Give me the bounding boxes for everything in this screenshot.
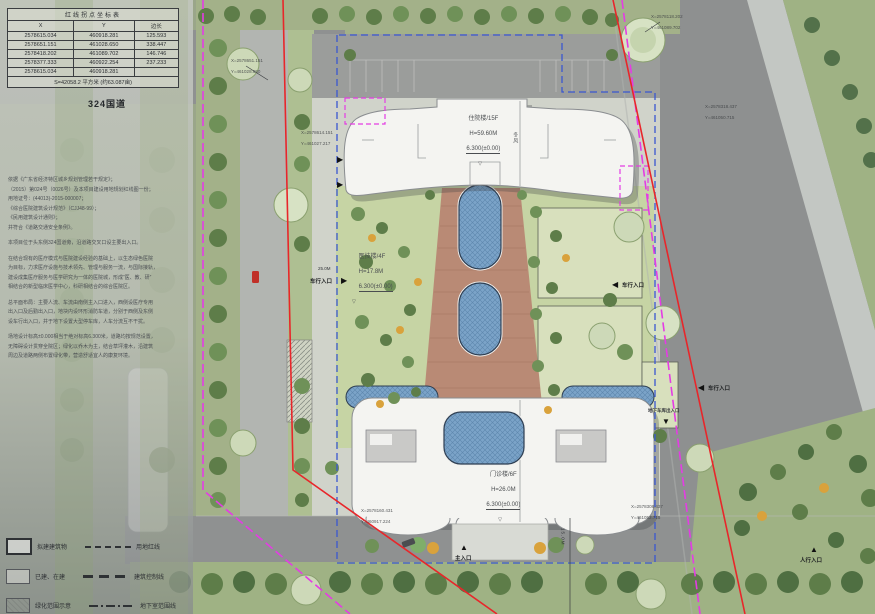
cell-len: 146.746 bbox=[134, 50, 178, 59]
cell-y: 460922.254 bbox=[74, 59, 135, 68]
callout-x: X=2578651.151 bbox=[231, 58, 263, 63]
note-line: 本项目位于头东侧324国道旁，沿道路交叉口设主要出入口。 bbox=[8, 239, 186, 248]
coord-callout: X=2578651.151 Y=461028.650 bbox=[226, 52, 263, 80]
note-line: 相结合的新型临床医学中心，科研相结合的综合医院区。 bbox=[8, 283, 186, 292]
note-line: （2015）第024号（0026号）及本项目建设用地规划红线图一份； bbox=[8, 186, 186, 195]
coord-callout: X=2578614.151 Y=461027.217 bbox=[296, 124, 333, 152]
cell-x: 2578418.202 bbox=[8, 50, 74, 59]
cell-y: 460918.281 bbox=[74, 32, 135, 41]
cell-y: 460918.281 bbox=[74, 68, 135, 77]
coord-callout: X=2578318.437 Y=461050.715 bbox=[700, 98, 737, 126]
note-line: 依据《广东省经济特区城乡规划管理若干规定》； bbox=[8, 176, 186, 185]
inpatient-elevation: 6.300(±0.00) bbox=[466, 146, 500, 155]
callout-y: Y=461052.715 bbox=[631, 515, 660, 520]
medtech-building-label: 医技楼/4F H=17.8M 6.300(±0.00) ▽ bbox=[352, 246, 412, 319]
entrance-arrow-icon: ◀ bbox=[612, 281, 618, 289]
note-line bbox=[8, 293, 186, 298]
coord-callout: X=2578118.202 Y=461089.702 bbox=[646, 8, 683, 36]
left-road-dimension: 25.0M bbox=[318, 266, 331, 272]
outpatient-elevation: 6.300(±0.00) bbox=[486, 502, 520, 511]
legend-row: 已建、在建 建筑控制线 bbox=[6, 569, 191, 584]
pedestrian-entrance-arrow-icon: ▲ bbox=[810, 546, 818, 554]
cell-len: 237.233 bbox=[134, 59, 178, 68]
medtech-height: H=17.8M bbox=[359, 269, 384, 275]
cell-len bbox=[134, 68, 178, 77]
land-redline-sample-icon bbox=[85, 546, 131, 548]
note-line bbox=[8, 233, 186, 238]
entrance-arrow-icon: ▶ bbox=[337, 156, 343, 164]
table-row: 2578377.333 460922.254 237.233 bbox=[8, 59, 179, 68]
note-line: 总平面布局：主要人流、车流由南侧主入口进入，西侧设医疗专用 bbox=[8, 299, 186, 308]
greenery-swatch-icon bbox=[6, 598, 30, 613]
table-title: 红线拐点坐标表 bbox=[8, 9, 179, 21]
legend-label: 建筑控制线 bbox=[134, 572, 164, 581]
medtech-elevation: 6.300(±0.00) bbox=[359, 284, 393, 293]
bottom-road-dimension: 15.0M bbox=[560, 528, 566, 546]
callout-y: Y=460917.224 bbox=[361, 519, 390, 524]
coord-callout: X=2578160.431 Y=460917.224 bbox=[356, 502, 393, 530]
legend-label: 地下室范围线 bbox=[140, 601, 176, 610]
callout-y: Y=461027.217 bbox=[301, 141, 330, 146]
cell-x: 2578615.034 bbox=[8, 68, 74, 77]
note-line: 《民用建筑设计通则》； bbox=[8, 214, 186, 223]
legend-row: 绿化范围示意 地下室范围线 bbox=[6, 598, 191, 613]
callout-x: X=2578318.437 bbox=[705, 104, 737, 109]
col-y: Y bbox=[74, 21, 135, 32]
pedestrian-entrance-label: 人行入口 bbox=[800, 558, 822, 565]
left-vehicle-entrance-label: 车行入口 bbox=[310, 279, 332, 286]
cell-y: 461028.650 bbox=[74, 41, 135, 50]
note-line: 并符合《道路交通安全条例》。 bbox=[8, 224, 186, 233]
table-area-row: S=42058.2 平方米 (约63.087亩) bbox=[8, 77, 179, 88]
control-line-sample-icon bbox=[83, 575, 129, 578]
note-line: 在结合现有的医疗模式与医院建设经验的基础上，以生态绿色医院 bbox=[8, 255, 186, 264]
design-notes: 依据《广东省经济特区城乡规划管理若干规定》； （2015）第024号（0026号… bbox=[8, 176, 186, 362]
cell-x: 2578377.333 bbox=[8, 59, 74, 68]
legend-label: 已建、在建 bbox=[35, 572, 65, 581]
main-entrance-arrow-icon: ▲ bbox=[460, 544, 468, 552]
legend-row: 拟建建筑物 用地红线 bbox=[6, 538, 191, 555]
outpatient-name: 门诊楼/6F bbox=[490, 472, 517, 478]
cell-x: 2578615.034 bbox=[8, 32, 74, 41]
site-plan-drawing: 住院楼/15F H=59.60M 6.300(±0.00) ▽ 医技楼/4F H… bbox=[0, 0, 875, 614]
legend-label: 拟建建筑物 bbox=[37, 542, 67, 551]
cell-len: 338.447 bbox=[134, 41, 178, 50]
medtech-name: 医技楼/4F bbox=[359, 254, 386, 260]
outpatient-building-label: 门诊楼/6F H=26.0M 6.300(±0.00) ▽ bbox=[465, 464, 535, 537]
table-row: 2578651.151 461028.650 338.447 bbox=[8, 41, 179, 50]
wind-annotation: 冬风 bbox=[512, 132, 518, 144]
entrance-arrow-icon: ▶ bbox=[337, 181, 343, 189]
callout-y: Y=461028.650 bbox=[231, 69, 260, 74]
inpatient-height: H=59.60M bbox=[469, 131, 497, 137]
note-line: 建设成集医疗服务与医学研究为一体的医院城，形成“医、教、研” bbox=[8, 274, 186, 283]
cell-y: 461089.702 bbox=[74, 50, 135, 59]
outpatient-height: H=26.0M bbox=[491, 487, 516, 493]
entrance-arrow-icon: ◀ bbox=[698, 384, 704, 392]
garage-entrance-label: 地下车库出入口 bbox=[648, 408, 680, 414]
inpatient-building-label: 住院楼/15F H=59.60M 6.300(±0.00) ▽ bbox=[445, 108, 515, 181]
note-line: 为目标，力求医疗设施与技术领先、管理与服务一流，与国际接轨， bbox=[8, 264, 186, 273]
right-vehicle-entrance-label: 车行入口 bbox=[622, 283, 644, 290]
entrance-arrow-icon: ▶ bbox=[341, 277, 347, 285]
inpatient-name: 住院楼/15F bbox=[468, 116, 498, 122]
callout-y: Y=461050.715 bbox=[705, 115, 734, 120]
note-line: 周边及道路两侧布置绿化带，营造舒适宜人的康复环境。 bbox=[8, 352, 186, 361]
col-len: 边长 bbox=[134, 21, 178, 32]
note-line: 设车行出入口，并于地下设置大型停车库，人车分流互不干扰。 bbox=[8, 318, 186, 327]
table-row: 2578615.034 460918.281 bbox=[8, 68, 179, 77]
note-line: 《综合医院建筑设计规范》（CJJ48-99）； bbox=[8, 205, 186, 214]
callout-y: Y=461089.702 bbox=[651, 25, 680, 30]
callout-x: X=2578614.151 bbox=[301, 130, 333, 135]
note-line: 场地设计标高±0.000相当于绝对标高6.300米，道路均按规范设置， bbox=[8, 333, 186, 342]
proposed-building-swatch-icon bbox=[6, 538, 32, 555]
elevation-mark-icon: ▽ bbox=[352, 300, 412, 304]
col-x: X bbox=[8, 21, 74, 32]
elevation-mark-icon: ▽ bbox=[445, 162, 515, 166]
road-name-324: 324国道 bbox=[88, 97, 126, 110]
note-line bbox=[8, 249, 186, 254]
callout-x: X=2578160.431 bbox=[361, 508, 393, 513]
cell-x: 2578651.151 bbox=[8, 41, 74, 50]
cell-len: 125.593 bbox=[134, 32, 178, 41]
redline-coordinate-table: 红线拐点坐标表 X Y 边长 2578615.034 460918.281 12… bbox=[7, 8, 179, 88]
note-line bbox=[8, 327, 186, 332]
main-entrance-label: 主入口 bbox=[455, 556, 472, 563]
note-line: 用地证号：(44013)-2015-000007； bbox=[8, 195, 186, 204]
legend-label: 用地红线 bbox=[136, 542, 160, 551]
elevation-mark-icon: ▽ bbox=[465, 518, 535, 522]
table-row: 2578418.202 461089.702 146.746 bbox=[8, 50, 179, 59]
basement-line-sample-icon bbox=[89, 605, 135, 607]
left-info-panel: 红线拐点坐标表 X Y 边长 2578615.034 460918.281 12… bbox=[0, 0, 193, 614]
existing-building-swatch-icon bbox=[6, 569, 30, 584]
note-line: 无障碍设计贯穿全院区；绿化以乔木为主，结合草坪灌木，沿建筑 bbox=[8, 343, 186, 352]
callout-x: X=2578118.202 bbox=[651, 14, 683, 19]
coord-callout: X=2578308.437 Y=461052.715 bbox=[626, 498, 663, 526]
callout-x: X=2578308.437 bbox=[631, 504, 663, 509]
note-line: 出入口及后勤出入口，地块内设环形消防车道，分别于西侧及东侧 bbox=[8, 308, 186, 317]
right-lower-vehicle-entrance-label: 车行入口 bbox=[708, 386, 730, 393]
legend: 拟建建筑物 用地红线 已建、在建 建筑控制线 绿化范围示意 地下室范围线 bbox=[6, 538, 191, 614]
table-row: 2578615.034 460918.281 125.593 bbox=[8, 32, 179, 41]
legend-label: 绿化范围示意 bbox=[35, 601, 71, 610]
garage-entrance-arrow-icon: ▼ bbox=[662, 418, 670, 426]
